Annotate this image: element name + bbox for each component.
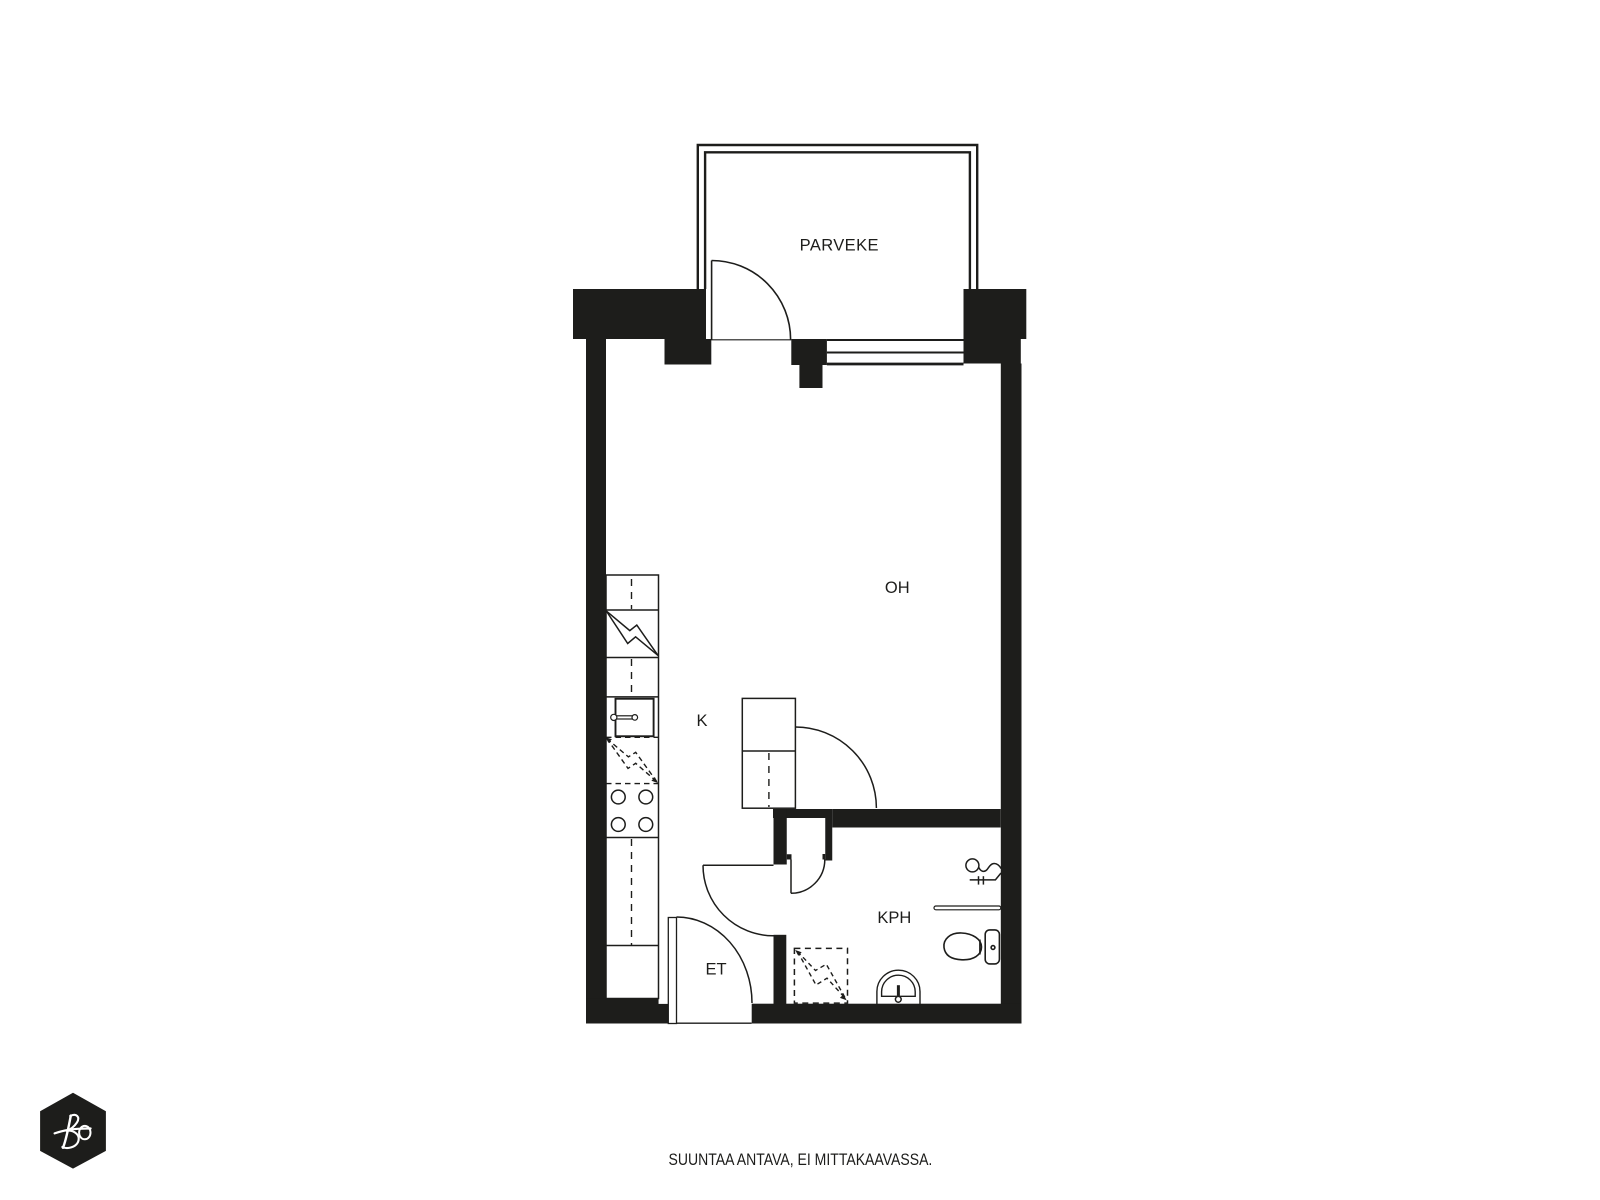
- svg-text:K: K: [696, 712, 707, 730]
- svg-text:OH: OH: [885, 579, 910, 597]
- svg-text:ET: ET: [705, 961, 726, 979]
- svg-text:SUUNTAA ANTAVA, EI MITTAKAAVAS: SUUNTAA ANTAVA, EI MITTAKAAVASSA.: [668, 1151, 932, 1170]
- svg-text:KPH: KPH: [877, 909, 911, 927]
- svg-text:PARVEKE: PARVEKE: [800, 237, 879, 255]
